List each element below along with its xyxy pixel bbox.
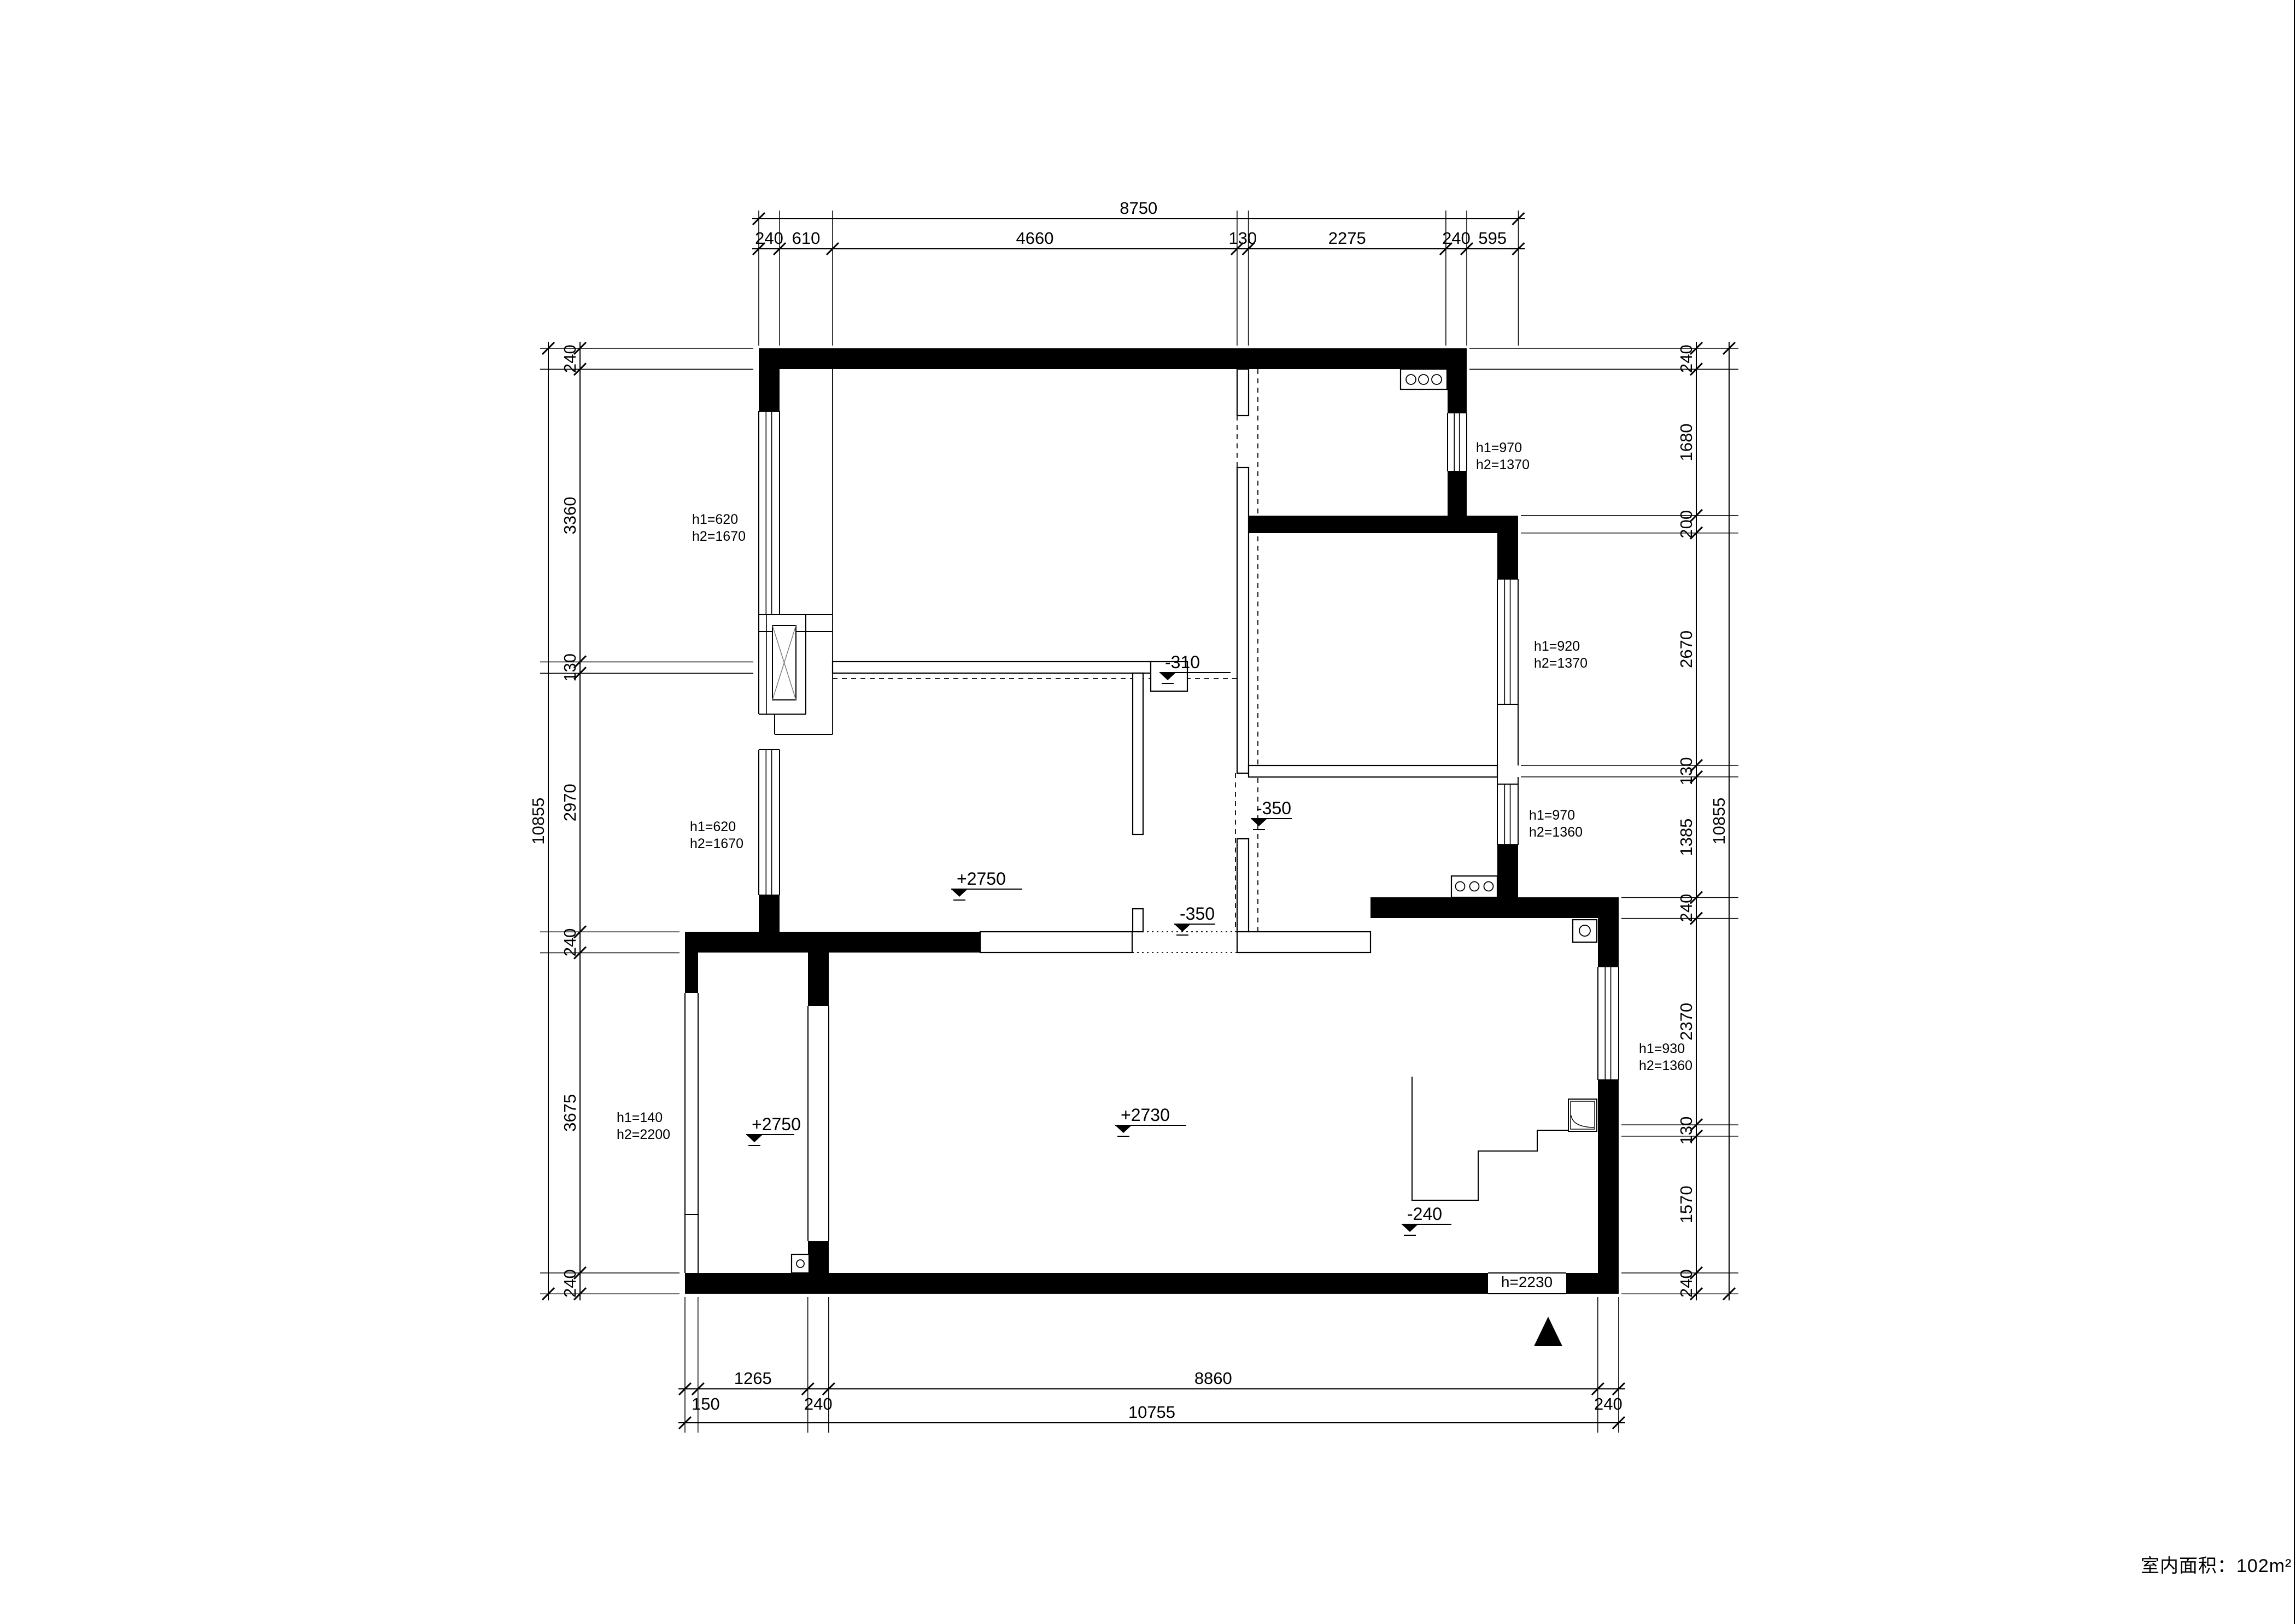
wall-outline <box>1133 909 1143 932</box>
dim-top-segment: 240 <box>1442 229 1471 248</box>
dim-bottom-total: 10755 <box>1128 1403 1175 1422</box>
level-marker-text: -240 <box>1407 1204 1442 1224</box>
wall-solid <box>1448 369 1467 413</box>
entry-arrow <box>1534 1317 1562 1346</box>
window-annotation: h2=1360 <box>1639 1058 1692 1073</box>
level-marker-text: -310 <box>1165 652 1200 672</box>
wall-solid <box>685 932 698 993</box>
level-marker-triangle <box>746 1135 763 1142</box>
window-annotation: h2=1670 <box>692 529 746 544</box>
window-annotation: h1=970 <box>1476 440 1522 455</box>
window-annotation: h2=2200 <box>617 1127 670 1142</box>
wall-solid <box>1370 897 1619 918</box>
dim-bottom-segment: 150 <box>692 1394 720 1413</box>
dim-bottom-segment: 240 <box>1594 1394 1623 1413</box>
dim-right-segment: 2670 <box>1677 630 1696 668</box>
wall-solid <box>808 953 829 1006</box>
level-marker-text: +2750 <box>752 1114 801 1134</box>
dim-right-segment: 200 <box>1677 510 1696 539</box>
wall-solid <box>1249 516 1518 533</box>
dim-right-segment: 1680 <box>1677 424 1696 462</box>
window-annotation: h2=1370 <box>1476 457 1530 472</box>
wall-solid <box>1497 533 1518 579</box>
dim-left-segment: 240 <box>560 928 579 957</box>
kitchen-counter <box>1412 1077 1597 1200</box>
window-annotation: h1=930 <box>1639 1041 1685 1056</box>
dim-left-total: 10855 <box>529 797 548 844</box>
wall-solid <box>759 348 1467 369</box>
wall-outline <box>1237 839 1249 932</box>
dim-right-segment: 130 <box>1677 757 1696 786</box>
wall-outline <box>792 1254 809 1273</box>
dim-top-total: 8750 <box>1120 198 1157 218</box>
wall-outline <box>1133 673 1143 834</box>
wall-solid <box>759 369 780 411</box>
window-annotation: h1=920 <box>1534 639 1580 654</box>
level-marker-triangle <box>1115 1125 1132 1133</box>
wall-solid <box>1598 918 1619 967</box>
wall-outline <box>1237 468 1249 773</box>
wall-solid <box>685 932 980 953</box>
wall-outline <box>980 932 1132 953</box>
window-annotation: h2=1370 <box>1534 656 1588 671</box>
wall-outline <box>1573 920 1597 942</box>
window-annotation: h1=620 <box>692 512 738 527</box>
dim-left-segment: 130 <box>560 653 579 682</box>
level-marker-triangle <box>1251 819 1267 826</box>
floor-plan: 8750240610466013022752405951075512658860… <box>0 0 2296 1624</box>
dim-bottom-segment: 8860 <box>1194 1369 1232 1388</box>
dim-top-segment: 240 <box>755 229 783 248</box>
dim-right-segment: 240 <box>1677 894 1696 922</box>
dim-left-segment: 3675 <box>560 1094 579 1132</box>
level-marker-triangle <box>951 889 968 897</box>
dim-right-segment: 1385 <box>1677 819 1696 856</box>
dim-right-total: 10855 <box>1709 797 1729 844</box>
wall-outline <box>833 662 1151 673</box>
dim-bottom-segment: 1265 <box>734 1369 772 1388</box>
wall-solid <box>1566 1273 1619 1294</box>
area-caption: 室内面积：102m² <box>2141 1551 2292 1578</box>
wall-outline <box>1237 369 1249 416</box>
wall-solid <box>759 895 780 932</box>
drawing-sheet: 8750240610466013022752405951075512658860… <box>0 0 2296 1624</box>
dim-right-segment: 2370 <box>1677 1003 1696 1041</box>
dim-left-segment: 240 <box>560 344 579 373</box>
level-marker-text: +2730 <box>1121 1105 1170 1125</box>
kitchen-sink <box>1568 1099 1597 1131</box>
dim-right-segment: 130 <box>1677 1117 1696 1145</box>
dim-right-segment: 240 <box>1677 1269 1696 1298</box>
wall-outline <box>1237 932 1370 953</box>
window-annotation: h1=620 <box>690 819 736 834</box>
level-marker-text: -350 <box>1256 798 1291 818</box>
wall-outline <box>1401 369 1447 389</box>
dim-top-segment: 595 <box>1478 229 1507 248</box>
window-annotation: h2=1360 <box>1529 825 1583 840</box>
wall-solid <box>808 1241 829 1273</box>
dim-top-segment: 2275 <box>1328 229 1366 248</box>
wall-outline <box>1451 876 1497 897</box>
dim-top-segment: 130 <box>1228 229 1257 248</box>
wall-solid <box>1598 1080 1619 1294</box>
level-marker-triangle <box>1174 924 1191 932</box>
door-height-label: h=2230 <box>1501 1274 1553 1290</box>
dim-left-segment: 240 <box>560 1269 579 1298</box>
window-annotation: h1=140 <box>617 1110 663 1125</box>
wall-solid <box>685 1273 1488 1294</box>
dim-left-segment: 3360 <box>560 496 579 534</box>
level-marker-triangle <box>1402 1224 1418 1232</box>
window-annotation: h1=970 <box>1529 808 1575 823</box>
wall-solid <box>1448 471 1467 516</box>
level-marker-text: -350 <box>1180 904 1215 924</box>
wall-outline <box>1249 766 1497 777</box>
level-marker-text: +2750 <box>957 869 1006 889</box>
dim-right-segment: 240 <box>1677 344 1696 373</box>
dim-right-segment: 1570 <box>1677 1185 1696 1223</box>
dim-top-segment: 610 <box>792 229 821 248</box>
dim-left-segment: 2970 <box>560 784 579 821</box>
window-annotation: h2=1670 <box>690 836 743 851</box>
dim-bottom-segment: 240 <box>804 1394 833 1413</box>
dim-top-segment: 4660 <box>1016 229 1053 248</box>
